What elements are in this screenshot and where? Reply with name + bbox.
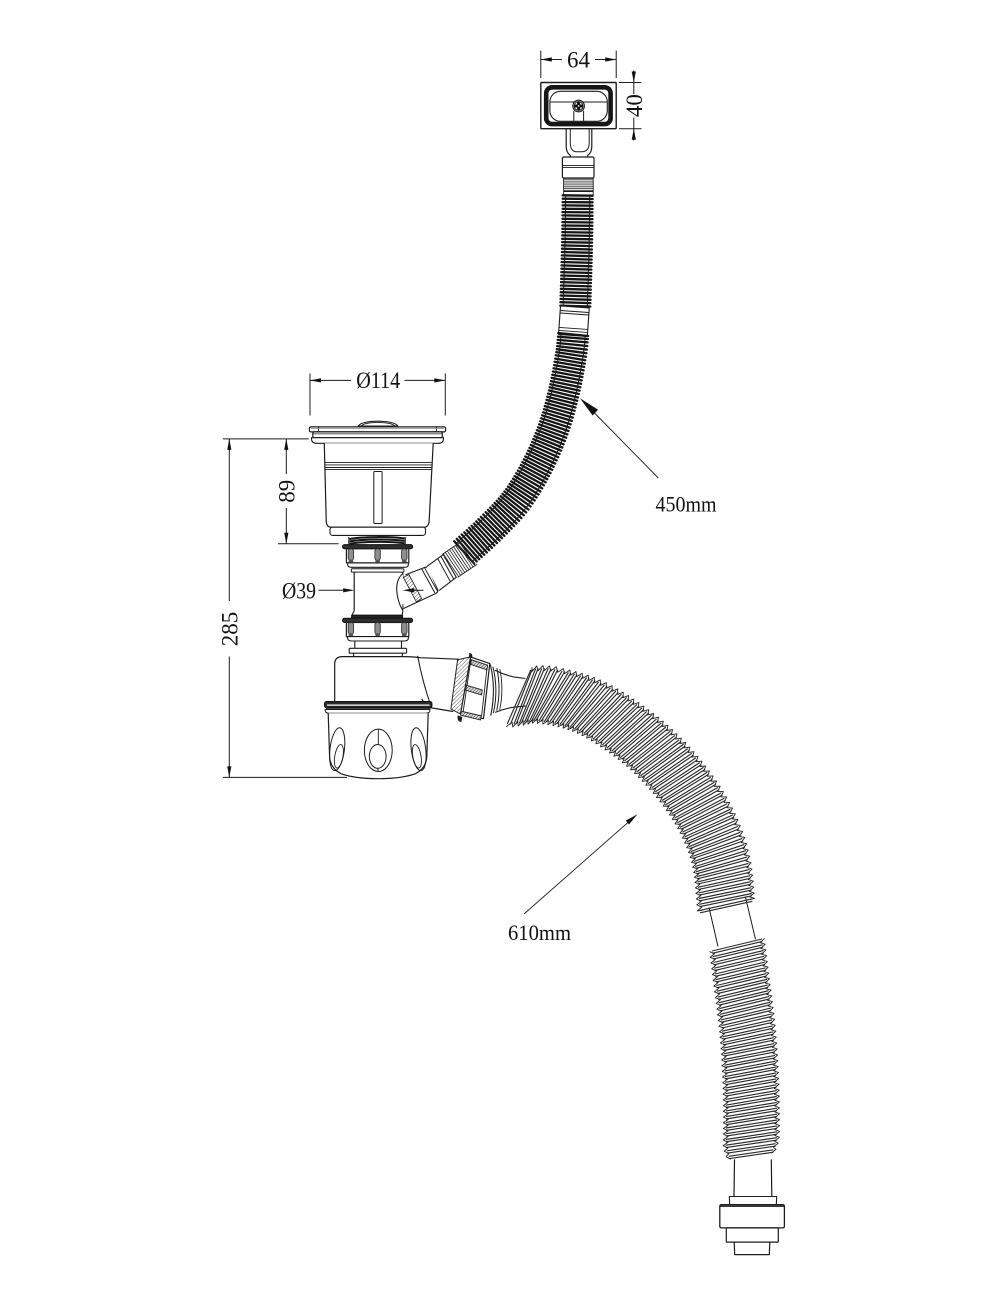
- svg-text:89: 89: [274, 480, 299, 503]
- svg-text:285: 285: [217, 612, 242, 647]
- svg-text:Ø114: Ø114: [356, 368, 400, 393]
- svg-text:Ø39: Ø39: [282, 579, 316, 604]
- svg-text:64: 64: [567, 47, 591, 72]
- svg-text:40: 40: [622, 94, 647, 117]
- svg-text:450mm: 450mm: [656, 492, 717, 517]
- svg-text:610mm: 610mm: [508, 920, 571, 945]
